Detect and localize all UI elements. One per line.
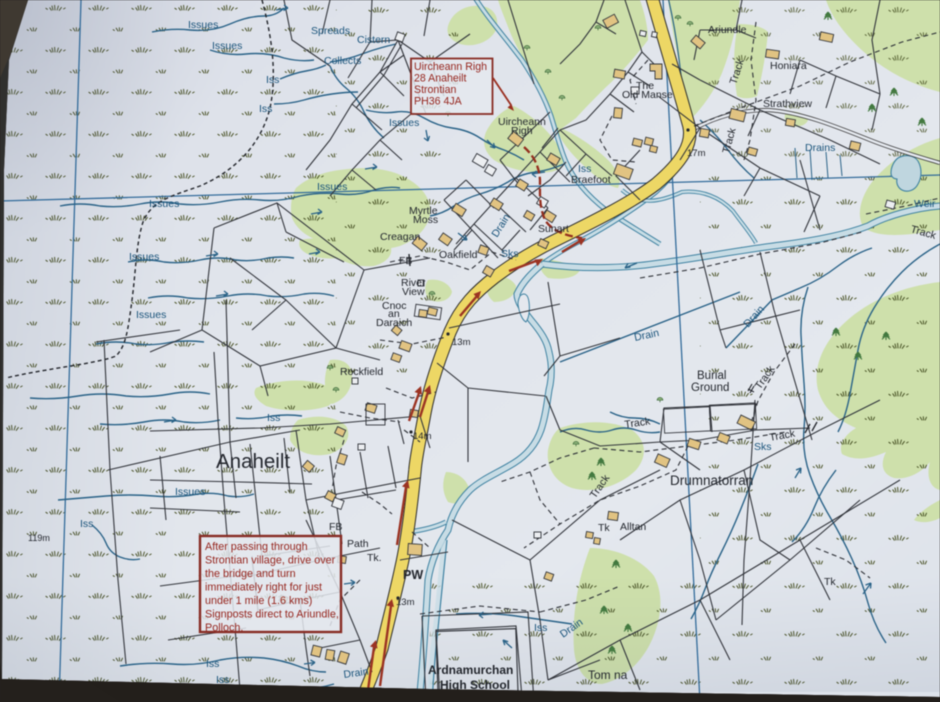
svg-text:28 Anaheilt: 28 Anaheilt (414, 73, 466, 85)
svg-text:Iss: Iss (80, 518, 93, 530)
svg-text:Issues: Issues (188, 19, 218, 31)
svg-text:PH36 4JA: PH36 4JA (414, 96, 463, 108)
svg-text:Iss: Iss (534, 622, 547, 634)
svg-text:Iss: Iss (206, 658, 219, 670)
svg-text:119m: 119m (28, 533, 50, 543)
svg-text:View: View (402, 286, 425, 298)
svg-text:Tk.: Tk. (367, 552, 382, 564)
svg-text:PW: PW (403, 568, 423, 582)
svg-text:14m: 14m (413, 431, 432, 442)
svg-text:Strathview: Strathview (763, 98, 812, 110)
svg-text:Issues: Issues (317, 181, 347, 193)
svg-text:Alltan: Alltan (620, 521, 646, 533)
svg-text:Polloch.: Polloch. (205, 622, 243, 634)
svg-text:Strontian village, drive over: Strontian village, drive over (205, 555, 336, 567)
svg-text:Strontian: Strontian (414, 84, 457, 96)
svg-text:13m: 13m (396, 597, 415, 608)
svg-text:Issues: Issues (136, 309, 166, 321)
svg-text:Spreads: Spreads (311, 25, 350, 37)
svg-text:Issues: Issues (175, 486, 205, 498)
svg-text:Creagan: Creagan (380, 231, 420, 243)
svg-text:17m: 17m (687, 148, 706, 159)
svg-text:Ardnamurchan: Ardnamurchan (428, 663, 513, 677)
svg-text:immediately right for just: immediately right for just (205, 582, 322, 594)
svg-text:Honiara: Honiara (770, 60, 807, 72)
svg-text:Ground: Ground (691, 382, 729, 394)
svg-text:Anaheilt: Anaheilt (216, 450, 290, 473)
svg-text:Issues: Issues (389, 117, 419, 129)
svg-text:Weir: Weir (914, 198, 936, 210)
svg-text:Tk: Tk (824, 576, 836, 588)
svg-text:After passing through: After passing through (205, 541, 308, 553)
svg-text:Iss: Iss (267, 412, 280, 424)
svg-text:Sunart: Sunart (538, 223, 569, 235)
svg-text:FB: FB (399, 255, 412, 267)
svg-text:Uircheann Righ: Uircheann Righ (414, 61, 487, 73)
svg-text:Tom na: Tom na (588, 668, 628, 682)
svg-text:Sks: Sks (501, 248, 519, 260)
svg-text:Drumnatorran: Drumnatorran (670, 473, 753, 488)
svg-text:13m: 13m (452, 337, 471, 348)
svg-text:Iss: Iss (266, 74, 279, 86)
svg-text:Burial: Burial (697, 370, 726, 382)
svg-text:Daraich: Daraich (376, 317, 412, 329)
svg-text:Braefoot: Braefoot (571, 174, 611, 186)
svg-text:Iss: Iss (578, 163, 591, 175)
svg-text:Righ: Righ (511, 125, 533, 137)
svg-text:Path: Path (347, 538, 369, 550)
svg-text:Issues: Issues (212, 40, 242, 52)
svg-text:under 1 mile (1.6 kms): under 1 mile (1.6 kms) (205, 595, 312, 607)
svg-text:Drains: Drains (805, 142, 835, 154)
svg-text:Iss: Iss (259, 103, 272, 115)
svg-text:Collects: Collects (324, 55, 361, 67)
svg-text:Issues: Issues (149, 198, 179, 210)
svg-text:Cistern: Cistern (357, 34, 390, 46)
svg-text:Signposts direct to Ariundle,: Signposts direct to Ariundle, (205, 609, 339, 621)
svg-text:Issues: Issues (129, 251, 159, 263)
svg-text:Ariundle: Ariundle (708, 24, 747, 36)
svg-text:FB: FB (329, 521, 342, 533)
svg-text:Sks: Sks (754, 441, 772, 453)
svg-text:the bridge and turn: the bridge and turn (205, 568, 296, 580)
svg-text:Oakfield: Oakfield (439, 249, 478, 261)
svg-text:Old Manse: Old Manse (622, 89, 673, 101)
svg-text:Rockfield: Rockfield (340, 366, 383, 378)
svg-text:Tk: Tk (598, 522, 610, 534)
svg-text:Moss: Moss (413, 214, 438, 226)
